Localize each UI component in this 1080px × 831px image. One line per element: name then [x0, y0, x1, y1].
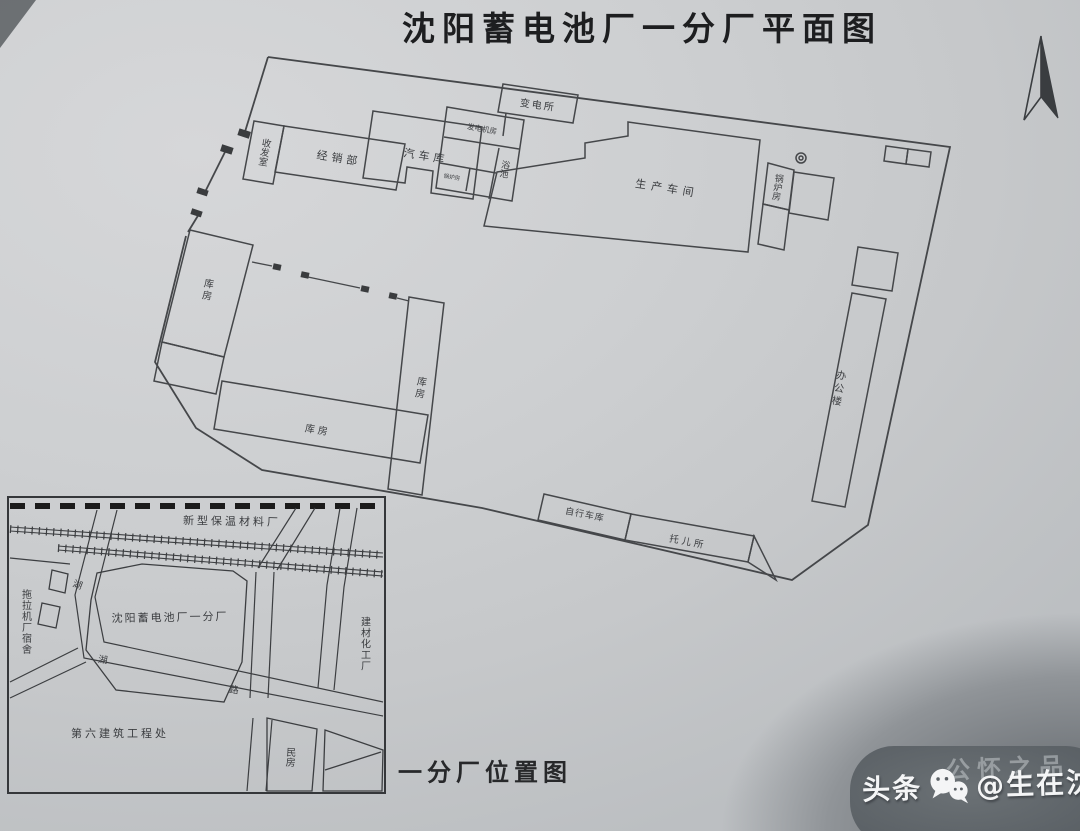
watermark-platform: 头条 [861, 767, 922, 809]
scanned-photo: 沈阳蓄电池厂一分厂平面图 收发室 经销部 汽车库 发电机房 浴池 锅炉房 变电所… [0, 0, 1080, 831]
inset-road-label-lu: 路 [229, 682, 240, 697]
plan-drawing [0, 0, 1080, 831]
building-kufang-left-annex [154, 342, 224, 394]
inset-blocks [38, 564, 383, 791]
inset-road-label-hu-bend: 湖 [97, 651, 108, 666]
inset-label-diliu: 第六建筑工程处 [71, 725, 169, 741]
site-boundary [155, 57, 950, 580]
building-bangonglou [812, 293, 886, 507]
north-arrow-icon [1024, 36, 1058, 120]
inset-label-minfang: 民房 [281, 747, 297, 768]
building-office-annex [852, 247, 898, 291]
inset-caption: 一分厂位置图 [398, 753, 572, 788]
page-title: 沈阳蓄电池厂一分厂平面图 [402, 2, 882, 50]
watermark-handle: @生在沈阳 [975, 759, 1080, 804]
gate-posts [190, 128, 251, 217]
building-guolufang-cluster [758, 153, 834, 250]
yard-fence [252, 262, 409, 301]
chat-bubbles-icon [925, 765, 972, 807]
inset-label-tuolaji: 拖拉机厂宿舍 [18, 589, 33, 655]
building-utility-cluster [436, 107, 524, 201]
building-top-right-pair [884, 146, 931, 167]
building-shengchanchejian [484, 122, 760, 252]
inset-label-jiancai: 建材化工厂 [357, 617, 372, 672]
inset-map [8, 497, 385, 793]
inset-label-xinxing: 新型保温材料厂 [183, 512, 281, 530]
inset-plant-block [86, 564, 247, 702]
inset-label-plant: 沈阳蓄电池厂一分厂 [111, 608, 228, 626]
watermark: 头条 @生在沈阳 [861, 759, 1080, 808]
